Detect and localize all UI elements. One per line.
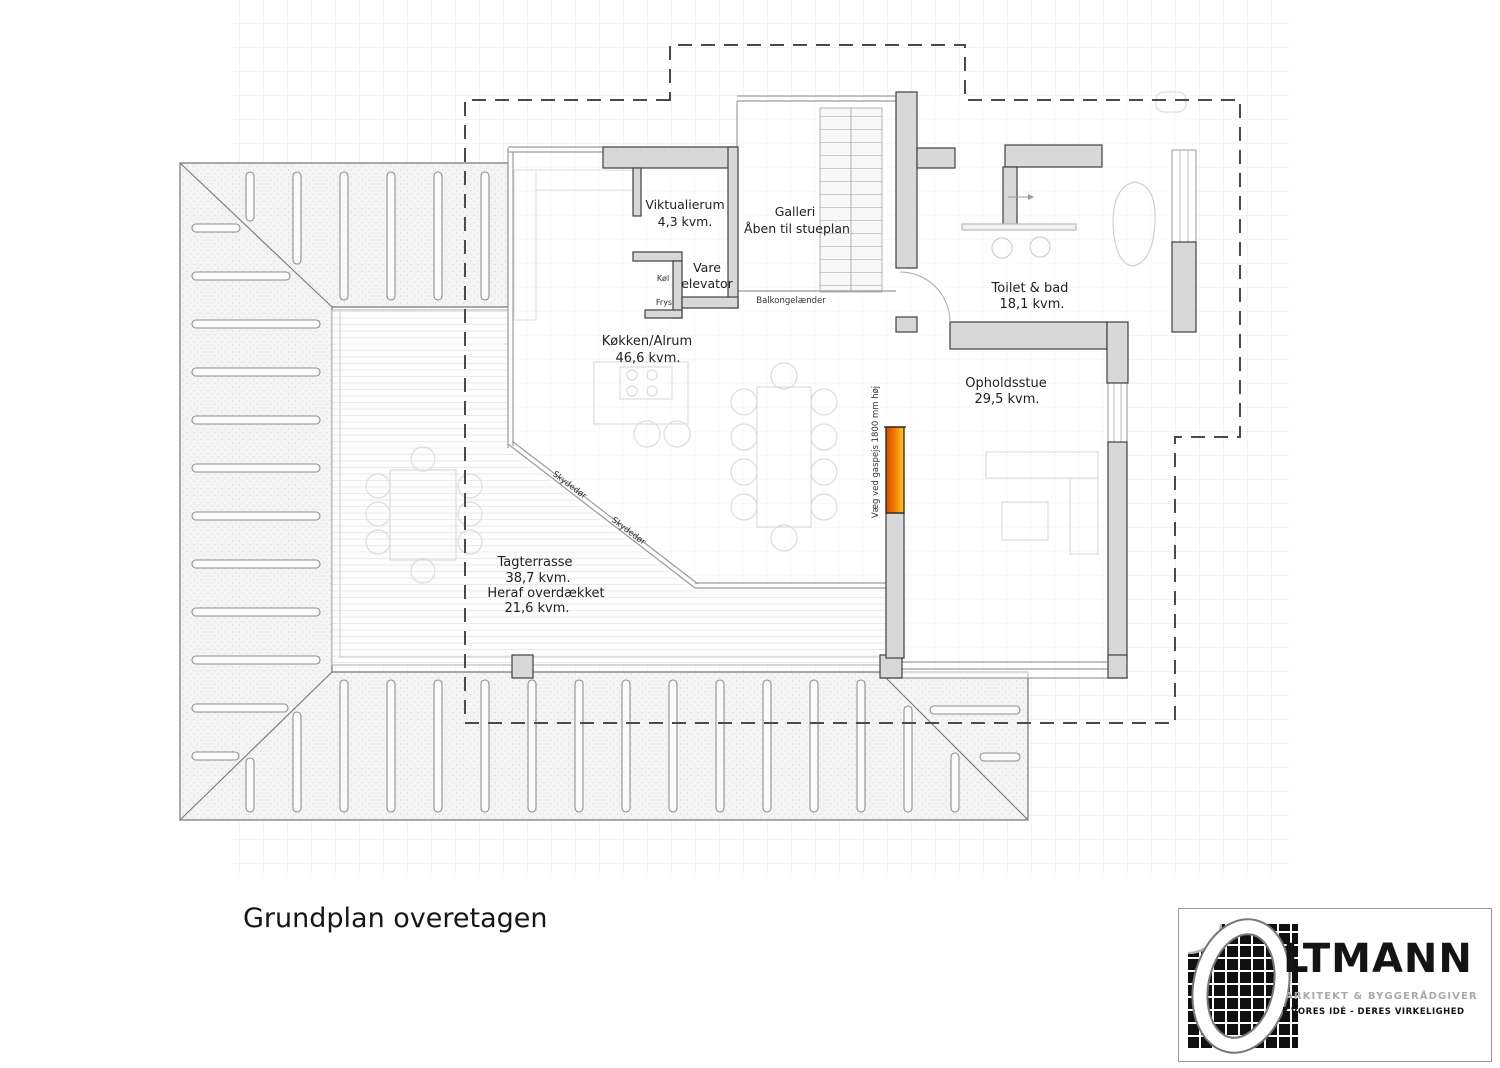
label-galleri-note: Åben til stueplan — [744, 221, 850, 236]
label-elevator: elevator — [681, 276, 733, 291]
staircase — [820, 108, 882, 292]
label-viktualierum: Viktualierum — [645, 197, 724, 212]
vanity-counter — [962, 224, 1076, 230]
fireplace-wall-highlight — [886, 427, 904, 513]
label-tagterrasse-note: Heraf overdækket — [487, 586, 604, 601]
wall-toilet-opholdsstue — [950, 322, 1107, 349]
label-gaspejs-wall: Væg ved gaspejs 1800 mm høj — [871, 386, 881, 518]
label-koekken: Køkken/Alrum — [602, 334, 692, 349]
logo-tagline-wedge-icon — [1283, 1007, 1289, 1016]
wall-opholdsstue-east — [1108, 442, 1127, 658]
label-toilet: Toilet & bad — [991, 281, 1069, 296]
fireplace-wall — [884, 427, 906, 513]
logo-name: LTMANN — [1283, 939, 1473, 979]
wall-kitchen-opholdsstue — [886, 513, 904, 658]
drawing-title: Grundplan overetagen — [243, 903, 548, 934]
label-tagterrasse: Tagterrasse — [496, 555, 572, 570]
floor-plan-page: Viktualierum 4,3 kvm. Galleri Åben til s… — [0, 0, 1500, 1068]
label-opholdsstue-area: 29,5 kvm. — [974, 392, 1039, 407]
label-opholdsstue: Opholdsstue — [965, 376, 1046, 391]
label-tagterrasse-note-area: 21,6 kvm. — [504, 601, 569, 616]
terrace-column — [512, 655, 533, 678]
logo: LTMANN ARKITEKT & BYGGERÅDGIVER VORES ID… — [1178, 908, 1492, 1062]
label-vare: Vare — [693, 260, 721, 275]
label-galleri: Galleri — [775, 204, 816, 219]
label-balkongelaender: Balkongelænder — [756, 296, 826, 306]
label-koekken-area: 46,6 kvm. — [615, 351, 680, 366]
label-koel: Køl — [657, 274, 669, 283]
logo-tagline: VORES IDÉ - DERES VIRKELIGHED — [1291, 1007, 1465, 1017]
logo-o-letter — [1179, 909, 1491, 1061]
label-toilet-area: 18,1 kvm. — [999, 297, 1064, 312]
wall-bath-north — [1005, 145, 1102, 167]
label-viktualierum-area: 4,3 kvm. — [658, 214, 713, 229]
label-frys: Frys — [656, 298, 672, 307]
logo-subtitle: ARKITEKT & BYGGERÅDGIVER — [1285, 991, 1478, 1002]
wall-viktualierum-top — [603, 147, 737, 168]
wall-galleri-toilet — [896, 92, 917, 268]
label-tagterrasse-area: 38,7 kvm. — [505, 571, 570, 586]
